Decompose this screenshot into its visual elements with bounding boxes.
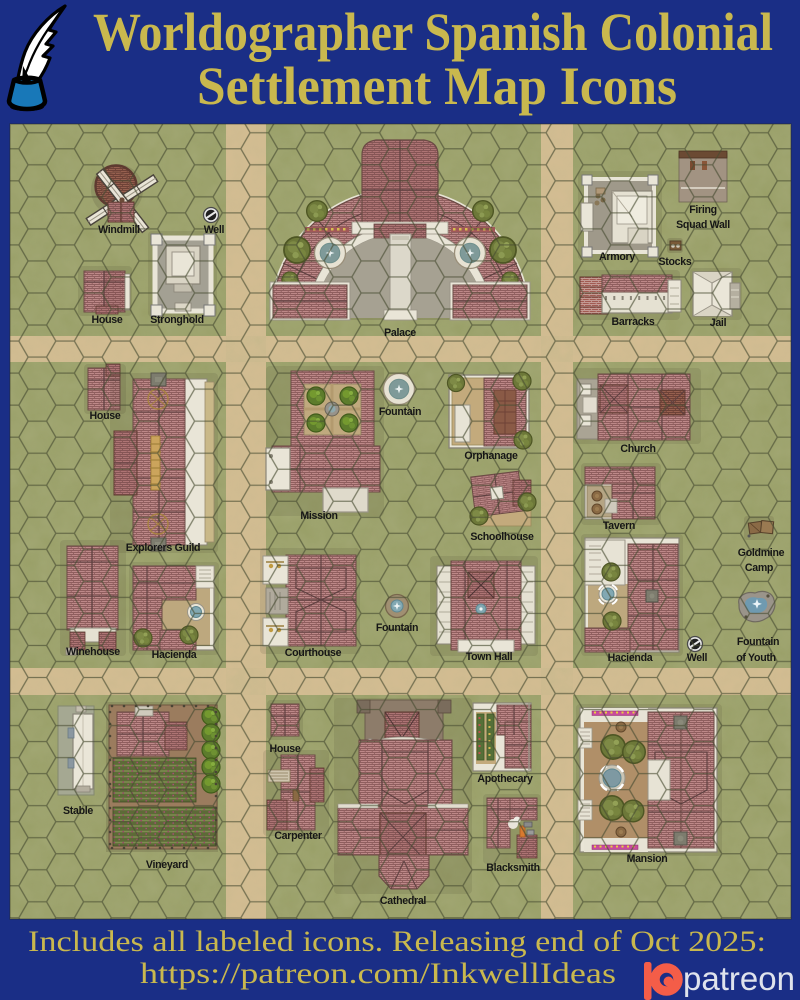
svg-text:Barracks: Barracks (612, 316, 655, 328)
svg-text:Camp: Camp (745, 562, 774, 574)
svg-text:Includes all labeled icons. Re: Includes all labeled icons. Releasing en… (28, 925, 766, 958)
svg-text:Goldmine: Goldmine (738, 547, 785, 559)
svg-text:Worldographer Spanish Colonial: Worldographer Spanish Colonial (93, 2, 773, 62)
svg-text:patreon: patreon (683, 960, 795, 997)
svg-text:House: House (90, 410, 121, 422)
svg-text:House: House (92, 314, 123, 326)
svg-text:Hacienda: Hacienda (608, 652, 653, 664)
svg-text:Fountain: Fountain (379, 406, 421, 418)
svg-text:Tavern: Tavern (603, 520, 635, 532)
svg-text:Blacksmith: Blacksmith (486, 862, 540, 874)
svg-text:Orphanage: Orphanage (464, 450, 518, 462)
svg-text:Stocks: Stocks (659, 256, 692, 268)
svg-text:https://patreon.com/InkwellIde: https://patreon.com/InkwellIdeas (140, 957, 616, 990)
svg-text:Courthouse: Courthouse (285, 647, 342, 659)
svg-text:Mission: Mission (300, 510, 337, 522)
svg-text:Settlement Map Icons: Settlement Map Icons (197, 56, 677, 116)
svg-text:Stronghold: Stronghold (150, 314, 204, 326)
svg-text:Well: Well (687, 652, 708, 664)
svg-text:Armory: Armory (599, 251, 635, 263)
svg-text:of Youth: of Youth (736, 652, 776, 664)
svg-text:Fountain: Fountain (376, 622, 418, 634)
svg-text:Squad Wall: Squad Wall (676, 219, 730, 231)
svg-text:Hacienda: Hacienda (152, 649, 197, 661)
svg-text:Schoolhouse: Schoolhouse (470, 531, 534, 543)
svg-text:Apothecary: Apothecary (477, 773, 533, 785)
svg-text:Fountain: Fountain (737, 636, 779, 648)
svg-text:Town Hall: Town Hall (466, 651, 513, 663)
svg-text:Palace: Palace (384, 327, 416, 339)
svg-text:Firing: Firing (689, 204, 717, 216)
svg-text:Stable: Stable (63, 805, 93, 817)
svg-text:Mansion: Mansion (627, 853, 668, 865)
svg-text:Vineyard: Vineyard (146, 859, 188, 871)
svg-text:Cathedral: Cathedral (380, 895, 427, 907)
svg-text:Windmill: Windmill (98, 224, 140, 236)
svg-text:House: House (270, 743, 301, 755)
svg-text:Jail: Jail (710, 317, 727, 329)
svg-text:Carpenter: Carpenter (274, 830, 322, 842)
svg-text:Well: Well (204, 224, 225, 236)
svg-text:Winehouse: Winehouse (66, 646, 120, 658)
svg-text:Church: Church (620, 443, 655, 455)
svg-text:Explorers Guild: Explorers Guild (126, 542, 200, 554)
